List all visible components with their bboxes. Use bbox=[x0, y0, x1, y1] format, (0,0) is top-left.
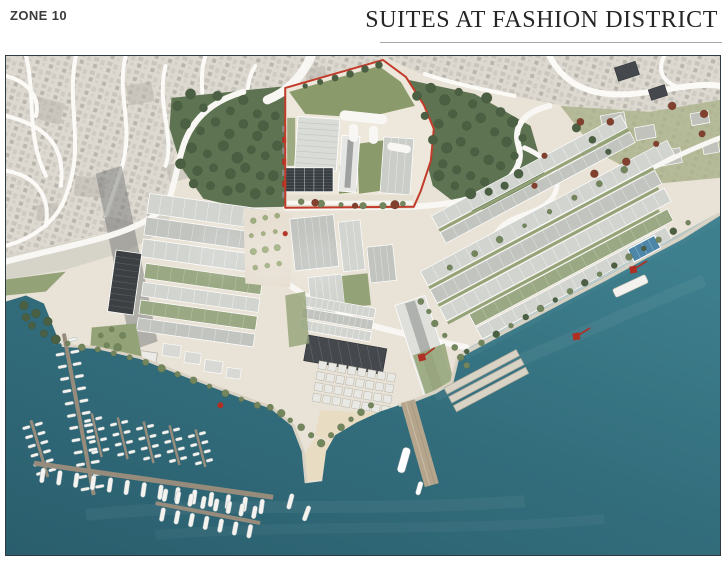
site-plan-map bbox=[5, 55, 721, 556]
zone-label: ZONE 10 bbox=[10, 8, 67, 23]
masterplan-rendering bbox=[6, 56, 720, 555]
title-divider bbox=[380, 42, 722, 43]
presentation-slide: ZONE 10 SUITES AT FASHION DISTRICT bbox=[0, 0, 724, 561]
page-title: SUITES AT FASHION DISTRICT bbox=[365, 7, 718, 34]
